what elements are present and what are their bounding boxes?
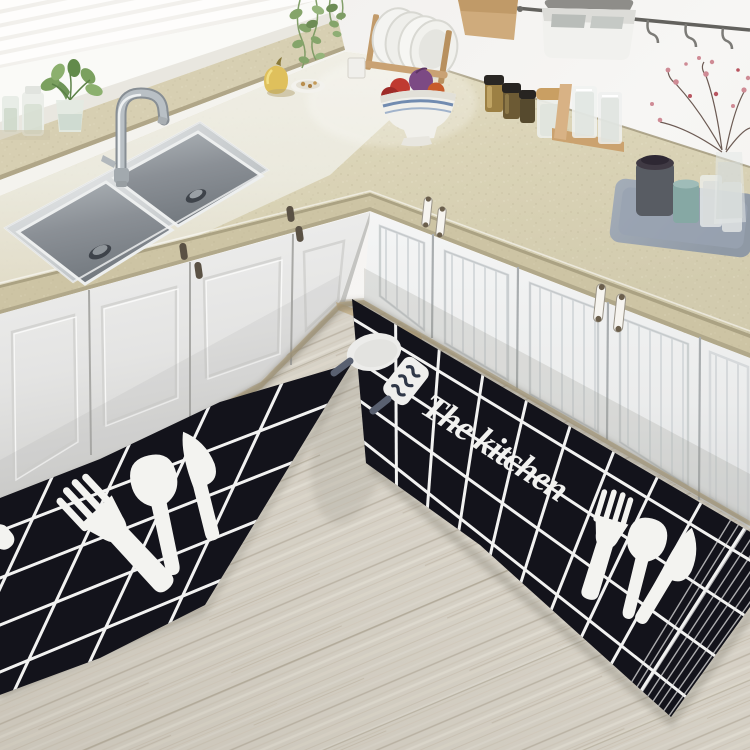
svg-text:The kitchen: The kitchen — [415, 385, 576, 509]
